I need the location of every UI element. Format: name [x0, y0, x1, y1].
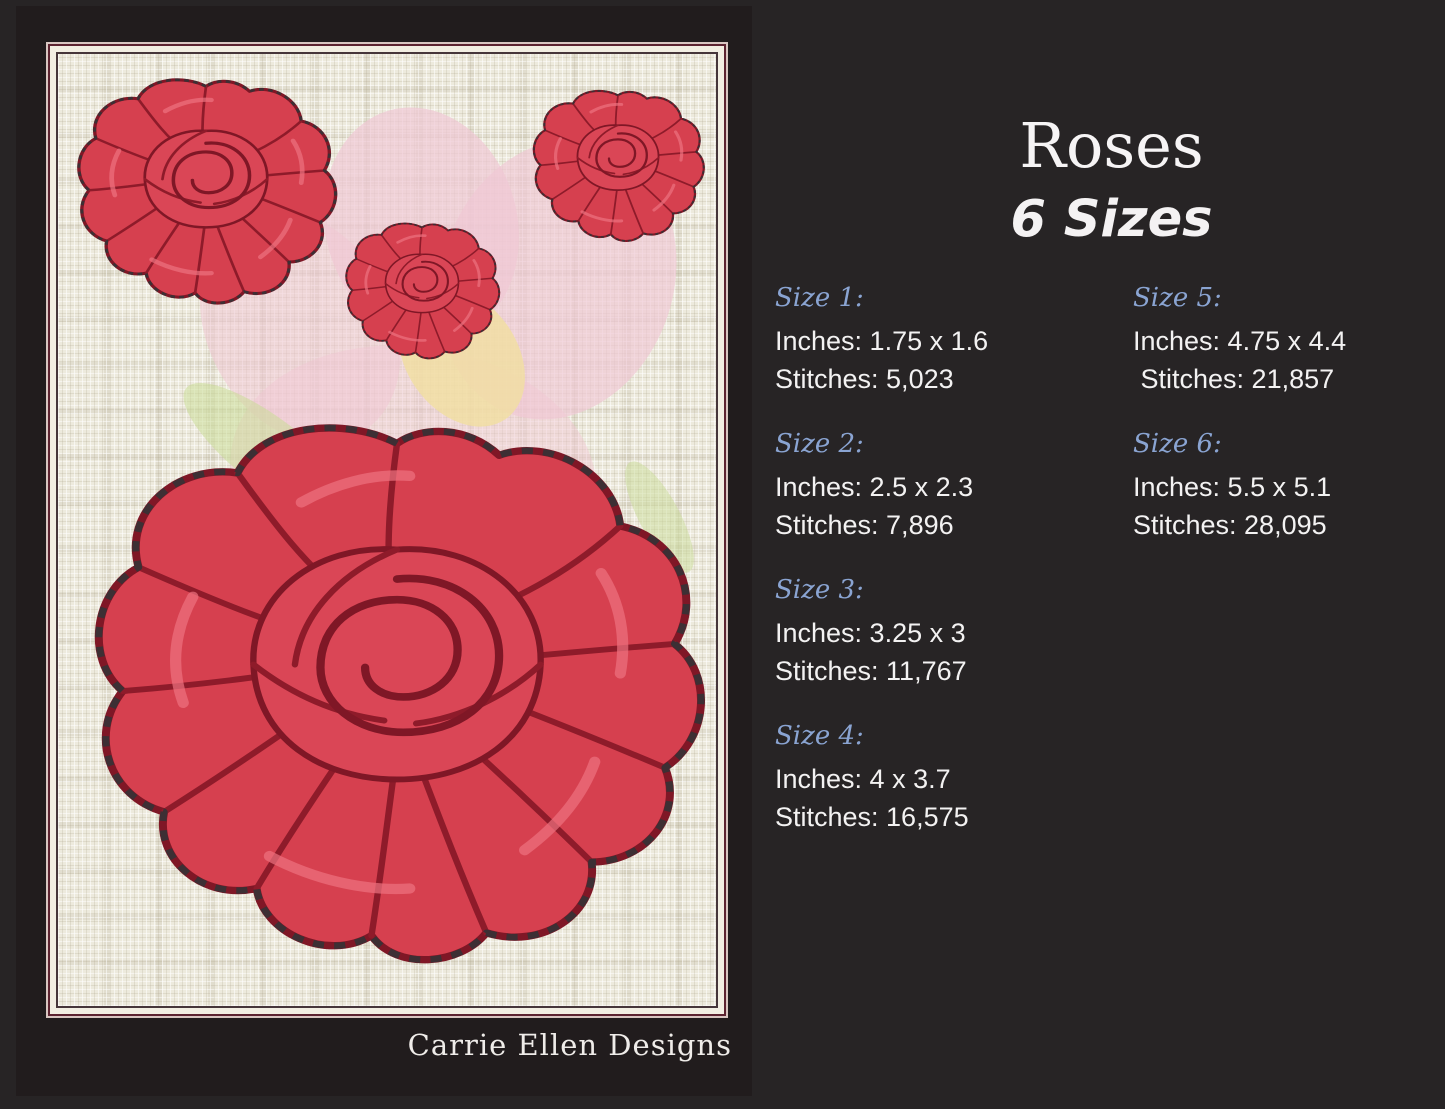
size-stitches: Stitches: 28,095 [1133, 506, 1445, 544]
size-inches: Inches: 2.5 x 2.3 [775, 468, 1125, 506]
size-stitches: Stitches: 11,767 [775, 652, 1125, 690]
size-inches: Inches: 3.25 x 3 [775, 614, 1125, 652]
size-label: Size 6: [1133, 428, 1445, 460]
size-entry-4: Size 4: Inches: 4 x 3.7 Stitches: 16,575 [775, 720, 1125, 836]
size-entry-1: Size 1: Inches: 1.75 x 1.6 Stitches: 5,0… [775, 282, 1125, 398]
size-entry-5: Size 5: Inches: 4.75 x 4.4 Stitches: 21,… [1133, 282, 1445, 398]
size-stitches: Stitches: 21,857 [1133, 360, 1445, 398]
rose-embroidery-middle-small [341, 220, 503, 362]
sizes-column-left: Size 1: Inches: 1.75 x 1.6 Stitches: 5,0… [775, 282, 1125, 866]
rose-embroidery-large [78, 414, 716, 974]
product-subtitle: 6 Sizes [778, 190, 1445, 249]
size-inches: Inches: 4 x 3.7 [775, 760, 1125, 798]
product-title: Roses [778, 112, 1445, 180]
embroidery-photo: Carrie Ellen Designs [16, 6, 752, 1096]
size-stitches: Stitches: 16,575 [775, 798, 1125, 836]
linen-fabric-panel [56, 52, 718, 1008]
size-inches: Inches: 5.5 x 5.1 [1133, 468, 1445, 506]
rose-embroidery-top-left [70, 74, 342, 309]
designer-signature: Carrie Ellen Designs [408, 1028, 732, 1062]
size-label: Size 4: [775, 720, 1125, 752]
size-inches: Inches: 1.75 x 1.6 [775, 322, 1125, 360]
size-stitches: Stitches: 5,023 [775, 360, 1125, 398]
size-entry-6: Size 6: Inches: 5.5 x 5.1 Stitches: 28,0… [1133, 428, 1445, 544]
size-inches: Inches: 4.75 x 4.4 [1133, 322, 1445, 360]
size-label: Size 5: [1133, 282, 1445, 314]
size-entry-2: Size 2: Inches: 2.5 x 2.3 Stitches: 7,89… [775, 428, 1125, 544]
size-label: Size 1: [775, 282, 1125, 314]
fabric-frame [48, 44, 726, 1016]
size-label: Size 3: [775, 574, 1125, 606]
size-entry-3: Size 3: Inches: 3.25 x 3 Stitches: 11,76… [775, 574, 1125, 690]
product-listing-image: Carrie Ellen Designs Roses 6 Sizes Size … [0, 0, 1445, 1109]
details-header: Roses 6 Sizes [752, 112, 1445, 249]
size-label: Size 2: [775, 428, 1125, 460]
rose-embroidery-top-right [528, 87, 708, 245]
sizes-column-right: Size 5: Inches: 4.75 x 4.4 Stitches: 21,… [1133, 282, 1445, 574]
size-stitches: Stitches: 7,896 [775, 506, 1125, 544]
